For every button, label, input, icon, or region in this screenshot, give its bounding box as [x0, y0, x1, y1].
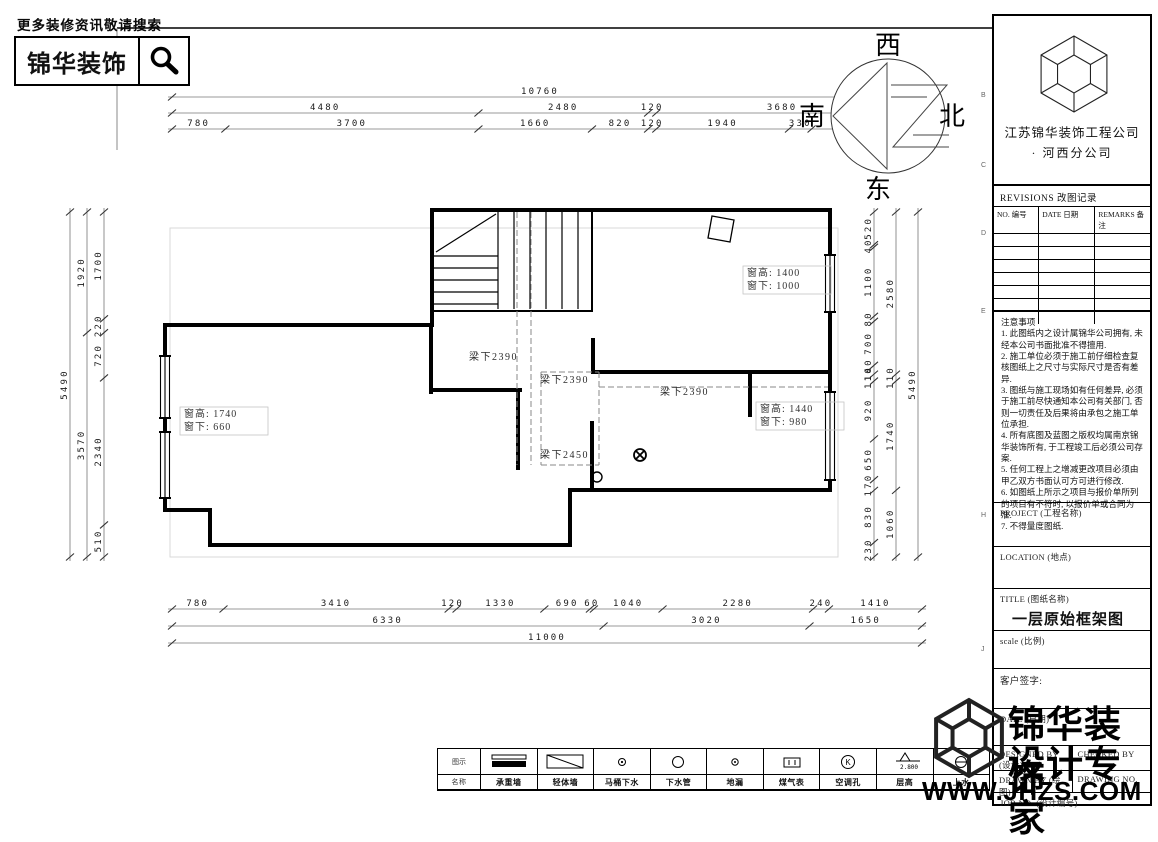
beam-label: 梁下2390: [660, 385, 709, 398]
cube-logo-lines: [1041, 36, 1107, 112]
window-label: 窗高: 1400窗下: 1000: [743, 266, 831, 294]
legend-symbol-cell: [764, 749, 820, 774]
dim-value: 820: [609, 119, 632, 129]
dim-value: 2340: [94, 436, 104, 466]
revisions-table: REVISIONS 改图记录 NO. 编号DATE 日期REMARKS 备注: [994, 184, 1150, 312]
floor-drain-symbol: [634, 449, 646, 461]
dim-value: 3410: [321, 599, 351, 609]
beam-label: 梁下2390: [469, 350, 518, 363]
legend-name-header: 名称: [452, 777, 467, 787]
dim-value: 120: [441, 599, 464, 609]
legend-item-name: 空调孔: [820, 774, 876, 789]
dim-value: 720: [94, 344, 104, 367]
revisions-empty-row: [994, 259, 1150, 272]
svg-text:窗高: 1740: 窗高: 1740: [184, 407, 237, 420]
legend-item-name: 承重墙: [481, 774, 537, 789]
note-item: 3. 图纸与施工现场如有任何差异, 必须于施工前尽快通知本公司有关部门, 否则一…: [1001, 385, 1143, 430]
water-supply-icon: [940, 750, 982, 774]
dim-value: 5490: [908, 369, 918, 399]
client-sign-label: 客户签字:: [1000, 673, 1144, 687]
window-label: 窗高: 1740窗下: 660: [180, 407, 268, 435]
dimension-chain-h: 633030201650: [168, 616, 926, 630]
window: [824, 255, 836, 312]
svg-text:窗下: 1000: 窗下: 1000: [747, 279, 800, 292]
dimension-chain-v: 258011017401060: [886, 208, 900, 561]
field-title: TITLE (图纸名称) 一层原始框架图: [994, 588, 1150, 630]
svg-text:窗高: 1400: 窗高: 1400: [747, 266, 800, 279]
brand-box: 锦华装饰: [14, 36, 190, 86]
floor-plan-canvas: 梁下2390梁下2390梁下2390梁下2450窗高: 1740窗下: 660窗…: [0, 0, 1158, 818]
scale-label: scale (比例): [1000, 635, 1144, 647]
dim-value: 1700: [94, 250, 104, 280]
job-no-label: JOB NO. (设计编号): [1000, 797, 1144, 809]
dim-value: 40: [864, 238, 874, 253]
window: [824, 392, 836, 480]
dim-value: 4480: [310, 103, 340, 113]
title-block: 江苏锦华装饰工程公司 · 河西分公司 REVISIONS 改图记录 NO. 编号…: [992, 14, 1152, 806]
staircase: [432, 210, 592, 311]
dim-value: 1330: [485, 599, 515, 609]
legend-item-name: 马桶下水: [594, 774, 650, 789]
dim-value: 6330: [373, 616, 403, 626]
note-item: 1. 此图纸内之设计属锦华公司拥有, 未经本公司书面批准不得擅用.: [1001, 328, 1143, 351]
revisions-empty-row: [994, 233, 1150, 246]
zone-letter: B: [981, 92, 986, 99]
dim-value: 1650: [851, 616, 881, 626]
dim-value: 3020: [691, 616, 721, 626]
date-label: DATE (日期): [1000, 713, 1144, 725]
field-date: DATE (日期): [994, 708, 1150, 745]
compass-label-top: 西: [875, 31, 901, 60]
zone-letter: C: [981, 162, 986, 169]
legend-symbol-cell: [651, 749, 707, 774]
dim-value: 1040: [613, 599, 643, 609]
toilet-drain-icon: [601, 750, 643, 774]
slogan-text: 更多装修资讯敬请搜索: [17, 14, 162, 34]
level-mark-icon: 2.800: [884, 750, 926, 774]
wall-hatch-icon: [544, 750, 586, 774]
dim-value: 510: [94, 530, 104, 553]
svg-text:窗下: 980: 窗下: 980: [760, 415, 807, 428]
legend-item-name: 层高: [877, 774, 933, 789]
compass: 西北东南: [799, 31, 965, 204]
legend-item: K空调孔: [820, 749, 877, 789]
dim-value: 120: [641, 119, 664, 129]
dimension-chain-h: 10760: [168, 87, 912, 101]
dim-value: 170: [864, 474, 874, 497]
dim-value: 2580: [886, 278, 896, 308]
drain-pipe-icon: [657, 750, 699, 774]
dim-value: 1660: [520, 119, 550, 129]
designed-by-label: DESIGNED BY (设计): [994, 746, 1073, 770]
wall-solid-icon: [488, 750, 530, 774]
brand-logo-text: 锦华装饰: [16, 38, 138, 84]
note-item: 4. 所有底图及蓝图之版权均属南京锦华装饰所有, 于工程竣工后必须公司存案.: [1001, 430, 1143, 464]
dim-value: 240: [810, 599, 833, 609]
dim-value: 650: [864, 448, 874, 471]
svg-text:窗高: 1440: 窗高: 1440: [760, 402, 813, 415]
field-drawn-drawingno: DRAWN BY (绘图) DRAWING NO.: [994, 770, 1150, 792]
revisions-empty-row: [994, 285, 1150, 298]
company-cube-logo: [1032, 30, 1116, 118]
svg-text:2.800: 2.800: [900, 764, 918, 771]
dimension-chain-v: 5490: [908, 208, 922, 561]
dim-value: 60: [584, 599, 599, 609]
dim-value: 120: [641, 103, 664, 113]
note-item: 5. 任何工程上之增减更改项目必须由甲乙双方书面认可方可进行修改.: [1001, 464, 1143, 487]
legend-item-name: 上水: [934, 774, 990, 789]
legend-symbol-header: 图示: [452, 757, 466, 767]
window: [159, 356, 171, 418]
field-client-sign: 客户签字:: [994, 668, 1150, 708]
legend-symbol-cell: [538, 749, 594, 774]
dim-value: 11000: [528, 633, 566, 643]
stair-diagonal: [436, 214, 496, 252]
floor-drain-icon: [714, 750, 756, 774]
legend-item-name: 煤气表: [764, 774, 820, 789]
legend-item-name: 地漏: [707, 774, 763, 789]
dim-value: 780: [186, 599, 209, 609]
column-symbol: [708, 216, 734, 242]
search-icon: [138, 38, 188, 84]
location-label: LOCATION (地点): [1000, 551, 1144, 563]
legend-item-name: 下水管: [651, 774, 707, 789]
legend-symbol-cell: K: [820, 749, 876, 774]
dim-value: 110: [886, 366, 896, 389]
dim-value: 10760: [521, 87, 559, 97]
dim-value: 1410: [860, 599, 890, 609]
stair-outline: [432, 210, 592, 311]
checked-by-label: CHECKED BY: [1073, 746, 1151, 770]
drawing-sheet: { "sheet": { "slogan": "更多装修资讯敬请搜索", "br…: [0, 0, 1158, 818]
field-scale: scale (比例): [994, 630, 1150, 668]
drawing-title: 一层原始框架图: [1012, 608, 1144, 629]
dim-value: 520: [864, 217, 874, 240]
legend-item-name: 轻体墙: [538, 774, 594, 789]
dimension-chain-v: 52040110080700140110920650170830230: [864, 208, 878, 561]
dim-value: 2280: [723, 599, 753, 609]
legend-table: 图示名称承重墙轻体墙马桶下水下水管地漏煤气表K空调孔2.800层高上水: [437, 748, 990, 791]
svg-text:窗下: 660: 窗下: 660: [184, 420, 231, 433]
revisions-empty-row: [994, 246, 1150, 259]
revisions-col-header: DATE 日期: [1039, 207, 1095, 233]
project-label: PROJECT (工程名称): [1000, 507, 1144, 519]
dim-value: 780: [187, 119, 210, 129]
dim-value: 3570: [77, 430, 87, 460]
dim-value: 2480: [548, 103, 578, 113]
gas-meter-icon: [771, 750, 813, 774]
field-location: LOCATION (地点): [994, 546, 1150, 588]
title-label: TITLE (图纸名称): [1000, 593, 1144, 605]
dim-value: 1100: [864, 267, 874, 297]
beam-label: 梁下2390: [540, 373, 589, 386]
dim-value: 1920: [77, 257, 87, 287]
dimension-chain-h: 11000: [168, 633, 926, 647]
legend-header-col: 图示名称: [438, 749, 481, 789]
revisions-col-header: REMARKS 备注: [1095, 207, 1150, 233]
notes-title: 注意事项: [1001, 317, 1143, 328]
compass-label-left: 南: [799, 102, 825, 131]
ac-hole-icon: K: [827, 750, 869, 774]
dim-value: 1060: [886, 508, 896, 538]
legend-item: 煤气表: [764, 749, 821, 789]
legend-symbol-cell: [481, 749, 537, 774]
company-name: 江苏锦华装饰工程公司: [994, 122, 1150, 141]
field-project: PROJECT (工程名称): [994, 502, 1150, 546]
legend-item: 地漏: [707, 749, 764, 789]
zone-letter: H: [981, 512, 986, 519]
dim-value: 110: [864, 366, 874, 389]
legend-item: 轻体墙: [538, 749, 595, 789]
zone-letter: J: [981, 646, 985, 653]
drawn-by-label: DRAWN BY (绘图): [994, 771, 1073, 792]
beam-label: 梁下2450: [540, 448, 589, 461]
dim-value: 700: [864, 332, 874, 355]
legend-item: 2.800层高: [877, 749, 934, 789]
dimension-chain-v: 19203570: [77, 208, 91, 561]
field-job-no: JOB NO. (设计编号): [994, 792, 1150, 806]
dim-value: 690: [556, 599, 579, 609]
dimension-chain-h: 7803410120133069060104022802401410: [168, 599, 926, 613]
xref-bound: [170, 228, 838, 557]
revisions-empty-row: [994, 298, 1150, 311]
dim-value: 5490: [60, 369, 70, 399]
note-item: 2. 施工单位必须于施工前仔细检查复核图纸上之尺寸与实际尺寸是否有差异.: [1001, 351, 1143, 385]
legend-symbol-cell: [707, 749, 763, 774]
legend-item: 下水管: [651, 749, 708, 789]
zone-letter: D: [981, 230, 986, 237]
legend-item: 马桶下水: [594, 749, 651, 789]
field-designed-checked: DESIGNED BY (设计) CHECKED BY: [994, 745, 1150, 770]
compass-label-right: 北: [939, 102, 965, 131]
notes-section: 注意事项 1. 此图纸内之设计属锦华公司拥有, 未经本公司书面批准不得擅用.2.…: [994, 312, 1150, 502]
dim-value: 3680: [767, 103, 797, 113]
dimension-chain-v: 5490: [60, 208, 74, 561]
revisions-title: REVISIONS 改图记录: [994, 186, 1150, 206]
legend-item: 承重墙: [481, 749, 538, 789]
revisions-col-header: NO. 编号: [994, 207, 1039, 233]
dim-value: 830: [864, 505, 874, 528]
legend-symbol-cell: [934, 749, 990, 774]
dim-value: 920: [864, 399, 874, 422]
dim-value: 80: [864, 311, 874, 326]
dim-value: 3700: [337, 119, 367, 129]
zone-letter: E: [981, 308, 986, 315]
drawing-no-label: DRAWING NO.: [1073, 771, 1151, 792]
dim-value: 1940: [707, 119, 737, 129]
legend-item: 上水: [934, 749, 990, 789]
legend-symbol-cell: 2.800: [877, 749, 933, 774]
window: [159, 432, 171, 498]
revisions-header-row: NO. 编号DATE 日期REMARKS 备注: [994, 206, 1150, 233]
dim-value: 1740: [886, 420, 896, 450]
company-branch: · 河西分公司: [994, 144, 1150, 161]
revisions-empty-row: [994, 272, 1150, 285]
dimension-chain-v: 17002207202340510: [94, 208, 108, 561]
compass-label-bottom: 东: [865, 175, 891, 204]
compass-circle: [831, 59, 945, 173]
svg-text:K: K: [845, 758, 851, 767]
legend-symbol-cell: [594, 749, 650, 774]
